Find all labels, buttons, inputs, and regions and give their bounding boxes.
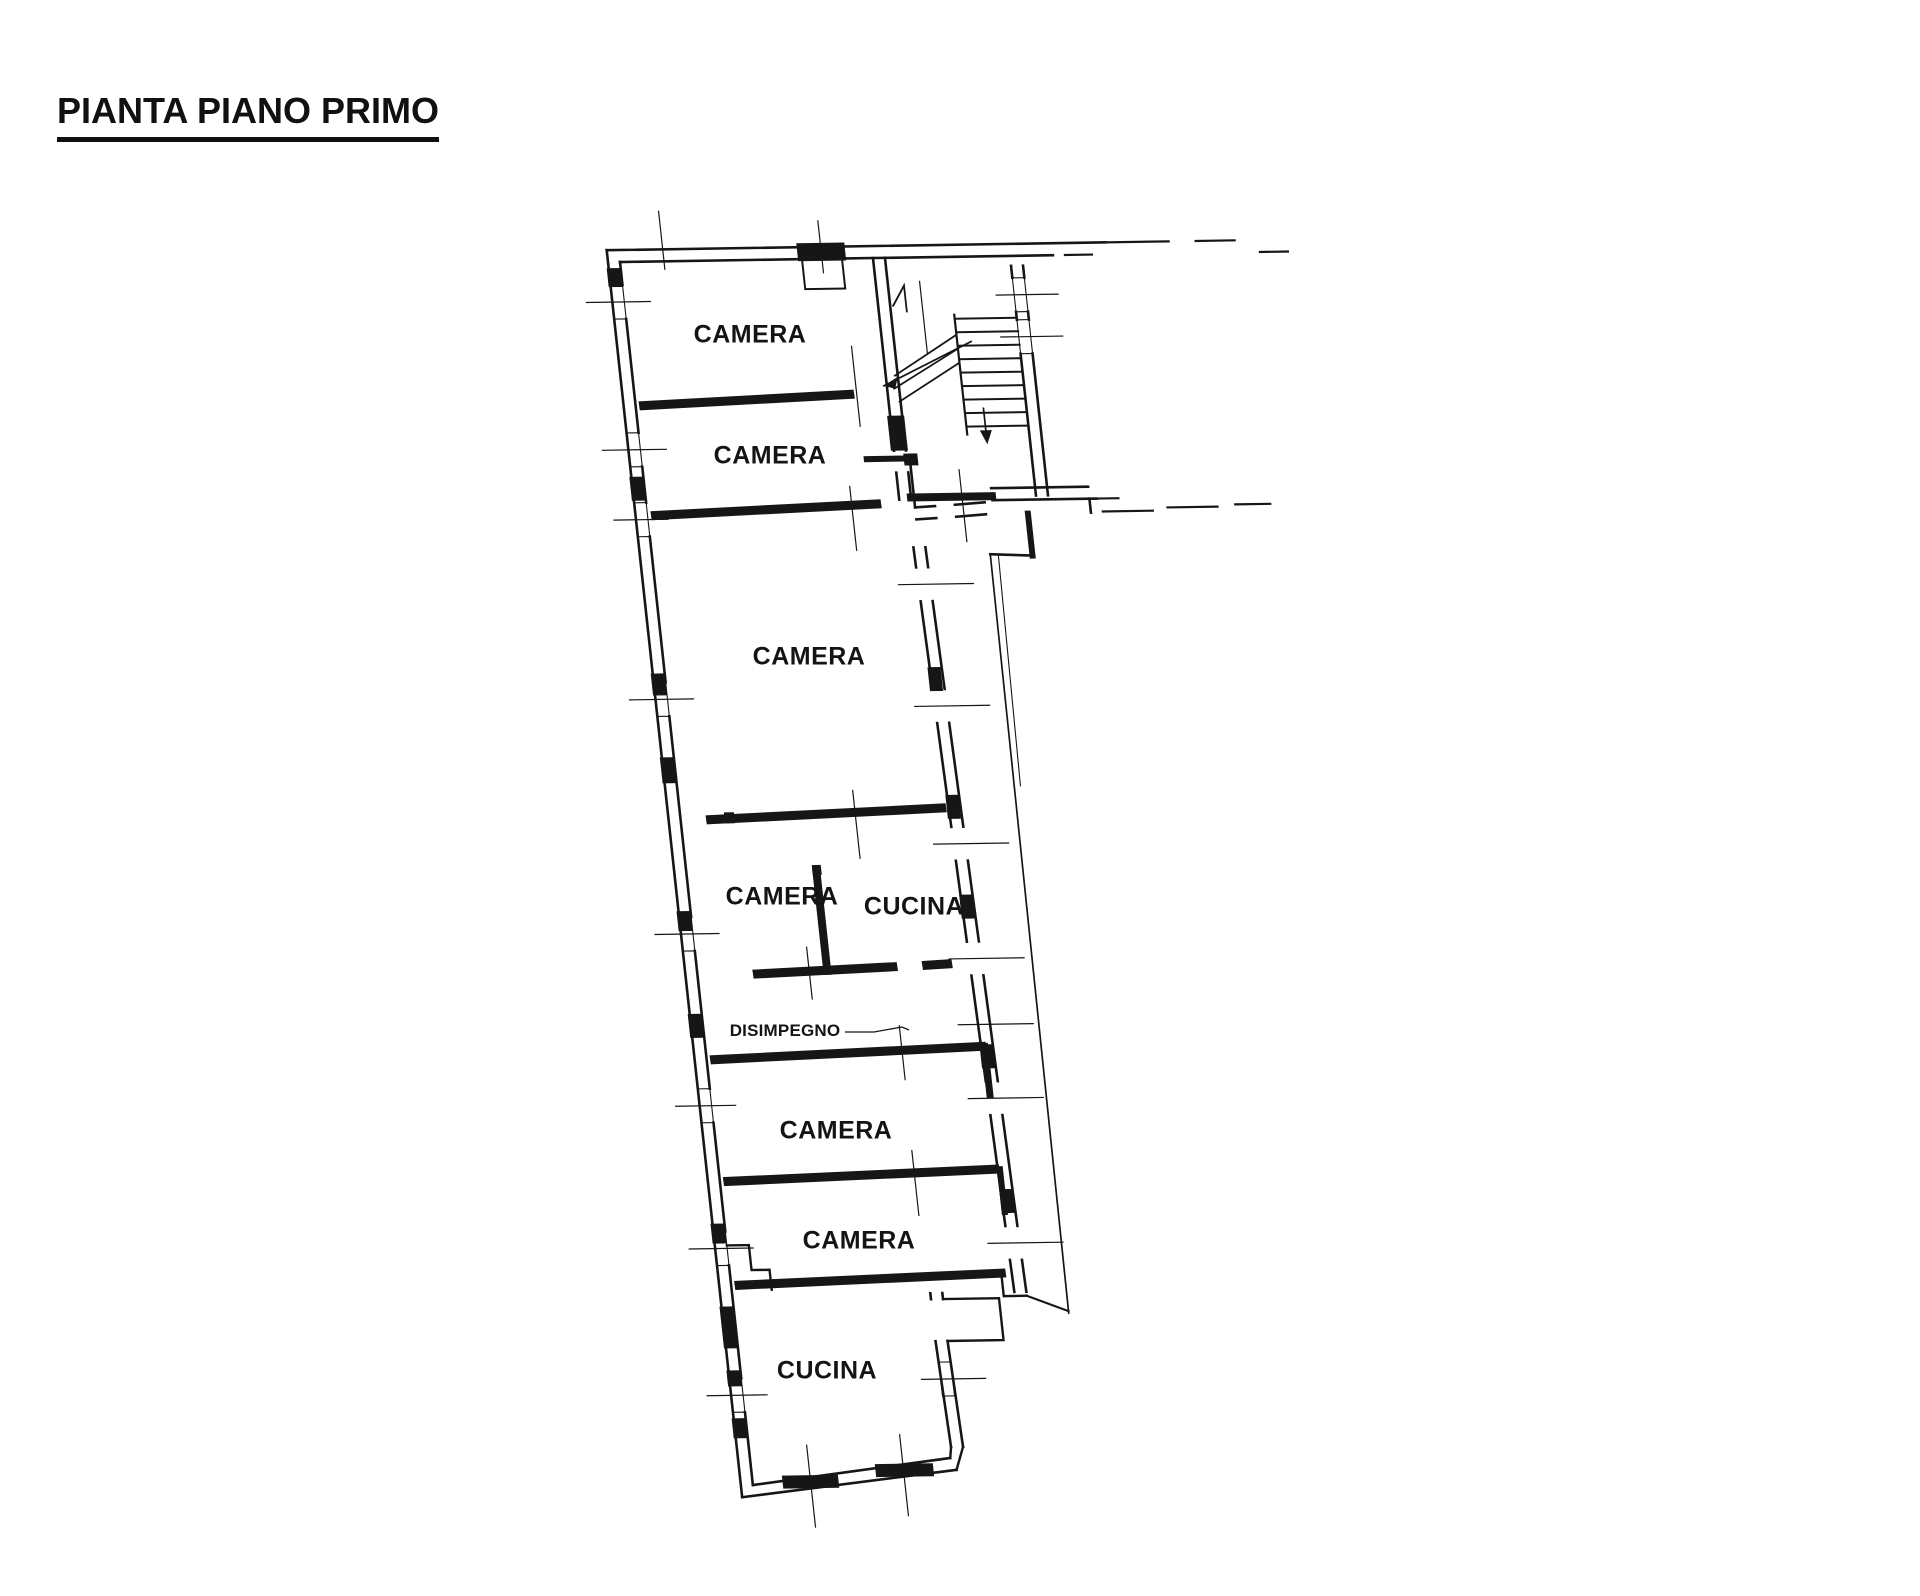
room-label-camera-1: CAMERA [694, 321, 807, 350]
room-label-cucina-1: CUCINA [864, 893, 964, 922]
kitchen-block-walls [928, 1273, 1045, 1470]
south-interior-walls [680, 808, 1013, 1291]
dashed-extension-lines [1064, 240, 1316, 512]
room-label-cucina-2: CUCINA [777, 1357, 877, 1386]
room-label-camera-6: CAMERA [803, 1227, 916, 1256]
exterior-walls [607, 242, 1241, 1497]
arrowhead-icon [980, 430, 994, 444]
vent-shaft-flue [802, 259, 845, 290]
room-label-camera-2: CAMERA [714, 442, 827, 471]
room-label-camera-3: CAMERA [753, 643, 866, 672]
stair-treads [955, 318, 1029, 427]
bottom-wall-windows [781, 1463, 935, 1488]
floor-plan-page: PIANTA PIANO PRIMO [0, 0, 1920, 1596]
room-label-disimpegno: DISIMPEGNO [730, 1021, 841, 1041]
room-label-camera-4: CAMERA [726, 883, 839, 912]
stair-hall-walls [873, 255, 1103, 558]
room-label-camera-5: CAMERA [780, 1117, 893, 1146]
mid-junction-walls [867, 457, 987, 520]
building-outline-group [577, 202, 1426, 1529]
floor-plan-drawing [0, 0, 1920, 1596]
wall-piers [604, 241, 1038, 1438]
